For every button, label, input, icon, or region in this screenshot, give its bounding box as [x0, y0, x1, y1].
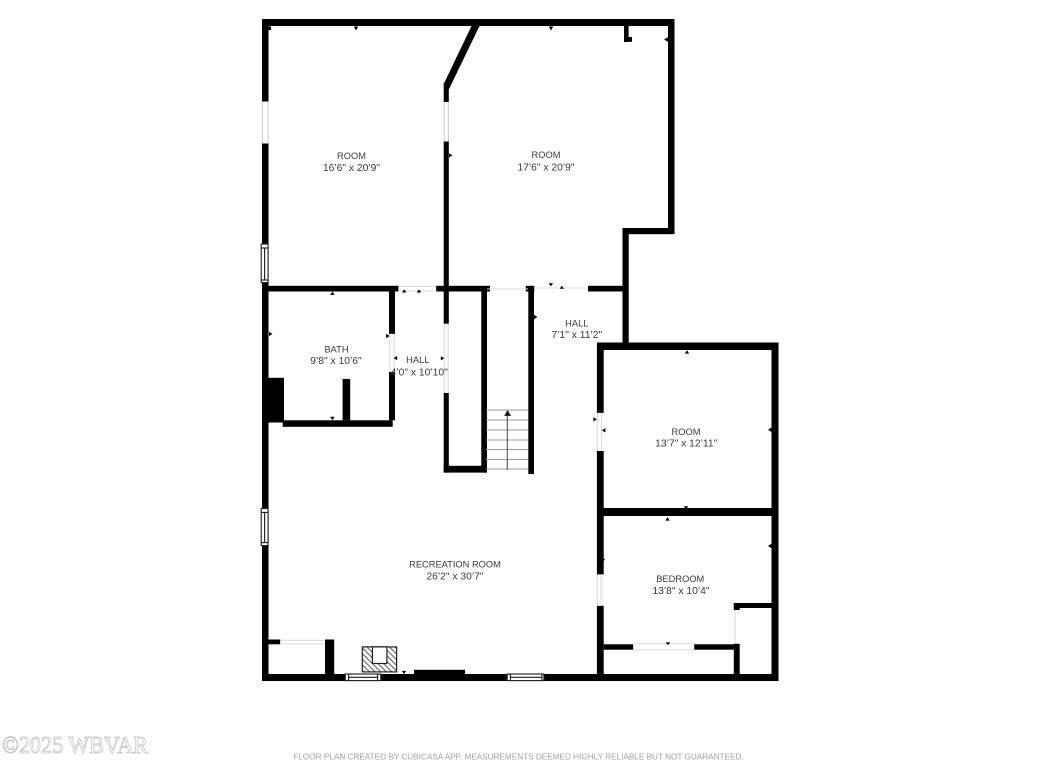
svg-text:26’2" x 30’7": 26’2" x 30’7"	[426, 571, 483, 582]
svg-text:©2025 WBVAR: ©2025 WBVAR	[2, 732, 149, 759]
svg-text:17’6" x 20’9": 17’6" x 20’9"	[517, 162, 574, 173]
svg-text:BATH: BATH	[324, 345, 348, 355]
svg-text:13’8" x 10’4": 13’8" x 10’4"	[652, 586, 709, 597]
svg-text:HALL: HALL	[406, 355, 429, 365]
svg-text:ROOM: ROOM	[532, 150, 561, 160]
svg-text:ROOM: ROOM	[337, 151, 366, 161]
svg-text:9’8" x 10’6": 9’8" x 10’6"	[310, 356, 362, 367]
svg-text:7’1" x 11’2": 7’1" x 11’2"	[551, 330, 602, 341]
svg-text:BEDROOM: BEDROOM	[656, 574, 704, 584]
svg-text:4’0" x 10’10": 4’0" x 10’10"	[391, 367, 448, 378]
svg-text:RECREATION ROOM: RECREATION ROOM	[409, 559, 501, 569]
svg-text:HALL: HALL	[565, 319, 588, 329]
svg-text:13’7" x 12’11": 13’7" x 12’11"	[655, 439, 717, 450]
svg-text:ROOM: ROOM	[672, 427, 701, 437]
svg-text:FLOOR PLAN CREATED BY CUBICASA: FLOOR PLAN CREATED BY CUBICASA APP. MEAS…	[293, 752, 743, 761]
svg-text:16’6" x 20’9": 16’6" x 20’9"	[323, 163, 380, 174]
